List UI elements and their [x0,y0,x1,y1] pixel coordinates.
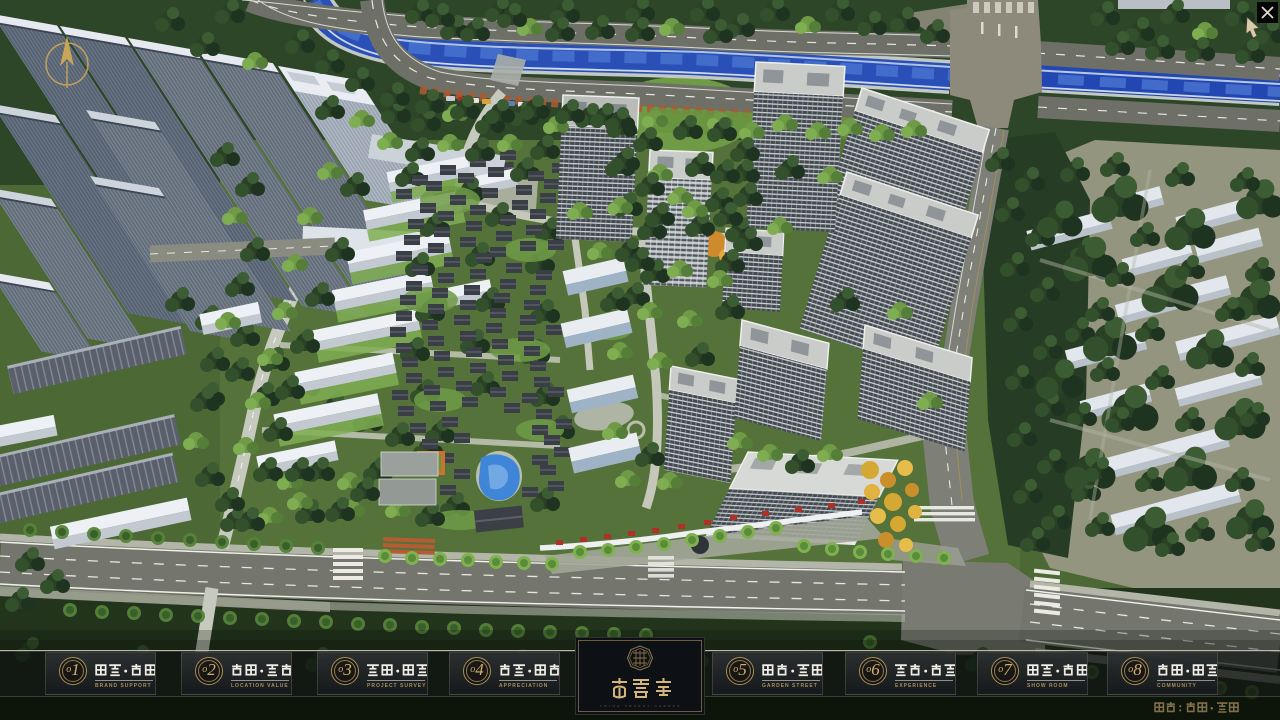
svg-text:C H I N A · S H A N X I · G A: C H I N A · S H A N X I · G A R D E N [600,704,680,708]
